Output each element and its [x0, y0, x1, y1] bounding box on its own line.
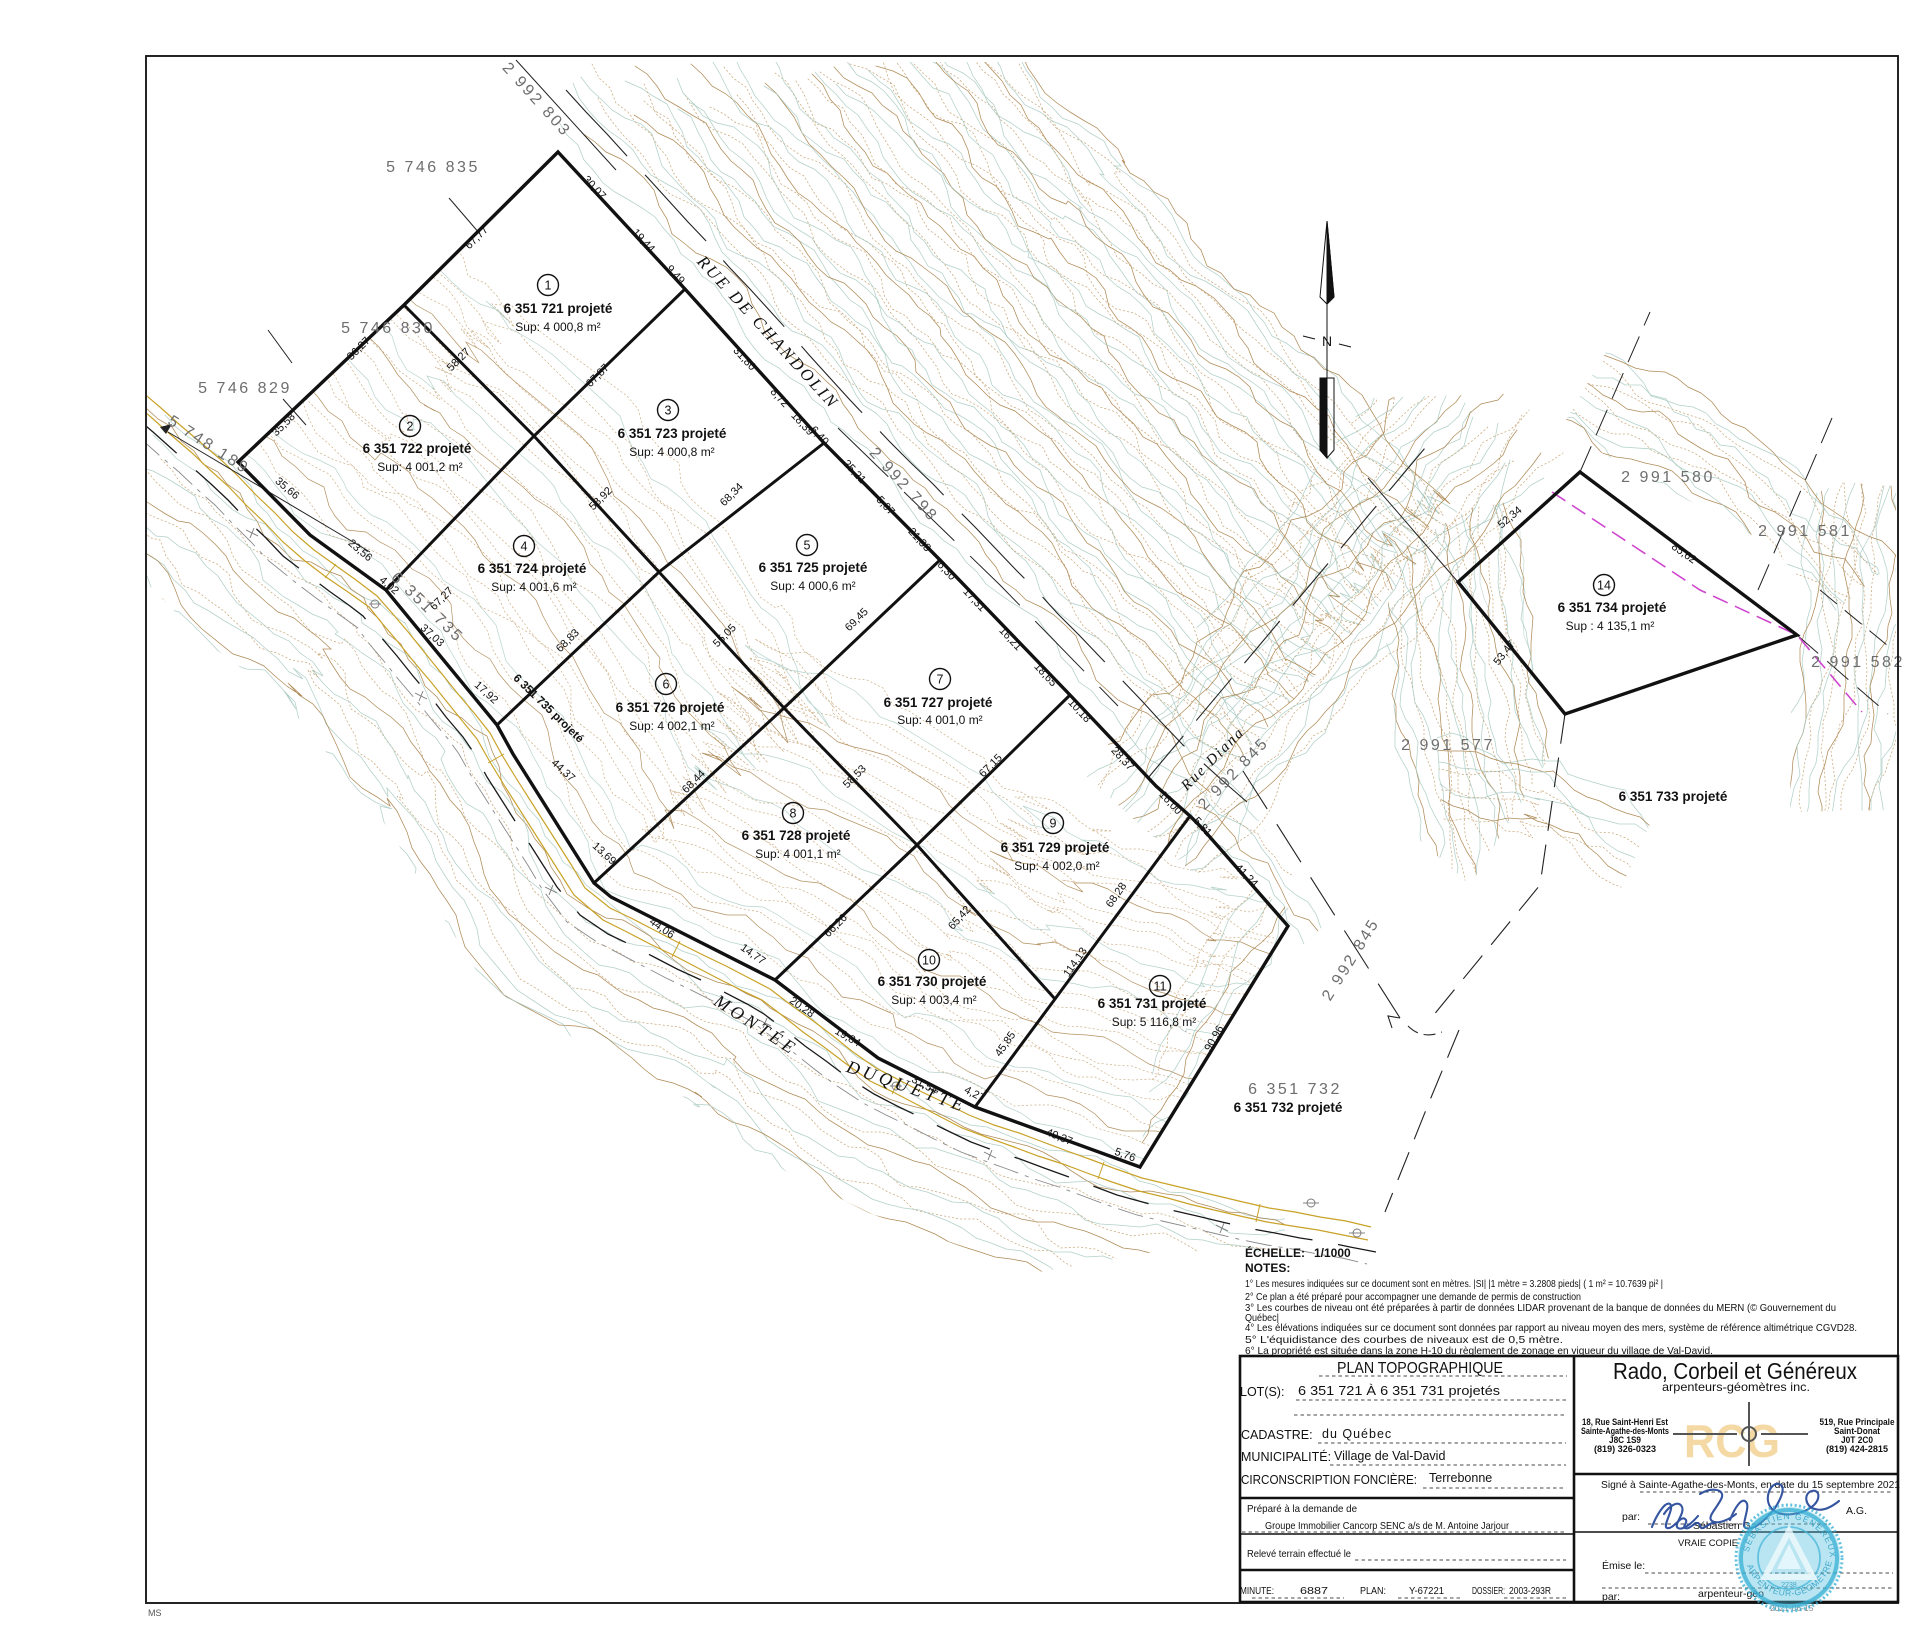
svg-text:6 351 731 projeté: 6 351 731 projeté [1098, 996, 1207, 1011]
svg-text:Émise le:: Émise le: [1602, 1559, 1645, 1572]
svg-text:PLAN:: PLAN: [1360, 1586, 1386, 1597]
svg-text:par:: par: [1602, 1591, 1620, 1603]
svg-text:CIRCONSCRIPTION FONCIÈRE:: CIRCONSCRIPTION FONCIÈRE: [1241, 1472, 1417, 1487]
svg-text:arpenteurs-géomètres inc.: arpenteurs-géomètres inc. [1662, 1380, 1810, 1394]
svg-text:6 351 734 projeté: 6 351 734 projeté [1558, 600, 1667, 615]
svg-text:6 351 728 projeté: 6 351 728 projeté [742, 828, 851, 843]
svg-text:11: 11 [1154, 980, 1167, 994]
svg-text:1: 1 [545, 279, 552, 293]
svg-text:MINUTE:: MINUTE: [1240, 1586, 1274, 1597]
svg-text:2003-293R: 2003-293R [1509, 1586, 1551, 1597]
svg-text:DOSSIER:: DOSSIER: [1472, 1586, 1505, 1597]
svg-text:6 351 722 projeté: 6 351 722 projeté [363, 441, 472, 456]
svg-text:10: 10 [922, 954, 936, 968]
svg-text:5 746 835: 5 746 835 [386, 159, 480, 176]
svg-text:Sup: 5 116,8 m²: Sup: 5 116,8 m² [1112, 1015, 1197, 1029]
svg-text:6 351 721 À 6 351 731 projetés: 6 351 721 À 6 351 731 projetés [1298, 1383, 1500, 1398]
svg-text:Sup: 4 001,2 m²: Sup: 4 001,2 m² [377, 460, 462, 474]
svg-text:3: 3 [665, 404, 672, 418]
svg-text:8: 8 [790, 807, 797, 821]
svg-text:VRAIE COPIE: VRAIE COPIE [1678, 1538, 1738, 1549]
svg-text:6887: 6887 [1300, 1586, 1329, 1597]
svg-text:6 351 724 projeté: 6 351 724 projeté [478, 561, 587, 576]
svg-text:2 991 582: 2 991 582 [1811, 654, 1905, 671]
svg-text:1/1000: 1/1000 [1314, 1246, 1351, 1260]
svg-text:5 746 829: 5 746 829 [198, 380, 292, 397]
svg-text:6 351 732: 6 351 732 [1248, 1081, 1342, 1098]
svg-text:6 351 725 projeté: 6 351 725 projeté [759, 560, 868, 575]
svg-text:RCG: RCG [1684, 1415, 1780, 1467]
svg-text:2238: 2238 [1781, 1582, 1797, 1589]
svg-text:4: 4 [521, 540, 528, 554]
svg-text:5: 5 [804, 539, 811, 553]
svg-text:Sup: 4 003,4 m²: Sup: 4 003,4 m² [891, 993, 976, 1007]
svg-text:par:: par: [1622, 1511, 1640, 1523]
svg-text:(819) 424-2815: (819) 424-2815 [1826, 1444, 1888, 1454]
svg-text:1° Les mesures indiquées sur c: 1° Les mesures indiquées sur ce document… [1245, 1278, 1663, 1290]
svg-text:Sup: 4 001,1 m²: Sup: 4 001,1 m² [755, 847, 840, 861]
svg-text:7: 7 [937, 673, 944, 687]
svg-text:du Québec: du Québec [1322, 1427, 1392, 1441]
svg-text:6 351 721 projeté: 6 351 721 projeté [504, 301, 613, 316]
svg-text:MUNICIPALITÉ:: MUNICIPALITÉ: [1241, 1449, 1331, 1464]
svg-text:Terrebonne: Terrebonne [1429, 1471, 1492, 1485]
svg-text:5 746 830: 5 746 830 [341, 320, 435, 337]
svg-text:Sup: 4 000,6 m²: Sup: 4 000,6 m² [770, 579, 855, 593]
svg-text:3° Les courbes de niveau ont é: 3° Les courbes de niveau ont été préparé… [1245, 1302, 1836, 1314]
svg-text:14: 14 [1597, 579, 1611, 593]
svg-text:LOT(S):: LOT(S): [1240, 1385, 1284, 1399]
svg-text:6 351 732 projeté: 6 351 732 projeté [1234, 1100, 1343, 1115]
svg-text:PLAN TOPOGRAPHIQUE: PLAN TOPOGRAPHIQUE [1337, 1360, 1503, 1377]
svg-text:Sup: 4 000,8 m²: Sup: 4 000,8 m² [629, 445, 714, 459]
svg-text:A.G.: A.G. [1846, 1505, 1867, 1517]
svg-text:Groupe Immobilier Cancorp SENC: Groupe Immobilier Cancorp SENC a/s de M.… [1265, 1520, 1509, 1532]
svg-text:2 991 581: 2 991 581 [1758, 523, 1852, 540]
svg-text:Sup: 4 001,6 m²: Sup: 4 001,6 m² [491, 580, 576, 594]
svg-text:6 351 727 projeté: 6 351 727 projeté [884, 695, 993, 710]
svg-text:MS: MS [148, 1608, 162, 1618]
svg-text:Sup: 4 002,1 m²: Sup: 4 002,1 m² [629, 719, 714, 733]
svg-text:ÉCHELLE:: ÉCHELLE: [1245, 1245, 1305, 1260]
svg-text:Relevé terrain effectué le: Relevé terrain effectué le [1247, 1548, 1351, 1560]
svg-text:6 351 733 projeté: 6 351 733 projeté [1619, 789, 1728, 804]
svg-text:Sup: 4 000,8 m²: Sup: 4 000,8 m² [515, 320, 600, 334]
svg-text:2: 2 [407, 420, 414, 434]
svg-text:Signé à Sainte-Agathe-des-Mo: Signé à Sainte-Agathe-des-Monts, en date… [1601, 1480, 1900, 1491]
svg-text:2 991 577: 2 991 577 [1401, 737, 1495, 754]
svg-text:6 351 730 projeté: 6 351 730 projeté [878, 974, 987, 989]
svg-text:9: 9 [1050, 817, 1057, 831]
svg-text:6 351 723 projeté: 6 351 723 projeté [618, 426, 727, 441]
svg-text:Sup : 4 135,1 m²: Sup : 4 135,1 m² [1566, 619, 1655, 633]
svg-text:Préparé à la demande de: Préparé à la demande de [1247, 1503, 1357, 1515]
svg-text:Sup: 4 001,0 m²: Sup: 4 001,0 m² [897, 713, 982, 727]
svg-text:6: 6 [663, 678, 670, 692]
svg-text:Sup: 4 002,0 m²: Sup: 4 002,0 m² [1014, 859, 1099, 873]
svg-text:CADASTRE:: CADASTRE: [1241, 1428, 1313, 1442]
svg-text:6 351 729 projeté: 6 351 729 projeté [1001, 840, 1110, 855]
svg-text:4° Les élévations indiquées su: 4° Les élévations indiquées sur ce docum… [1245, 1322, 1857, 1334]
svg-text:Village de Val-David: Village de Val-David [1334, 1449, 1445, 1463]
svg-text:N: N [1322, 333, 1332, 349]
svg-text:NOTES:: NOTES: [1245, 1261, 1290, 1275]
svg-text:2 991 580: 2 991 580 [1621, 469, 1715, 486]
svg-text:Y-67221: Y-67221 [1409, 1586, 1444, 1597]
svg-text:6 351 726 projeté: 6 351 726 projeté [616, 700, 725, 715]
svg-text:(819) 326-0323: (819) 326-0323 [1594, 1444, 1656, 1454]
